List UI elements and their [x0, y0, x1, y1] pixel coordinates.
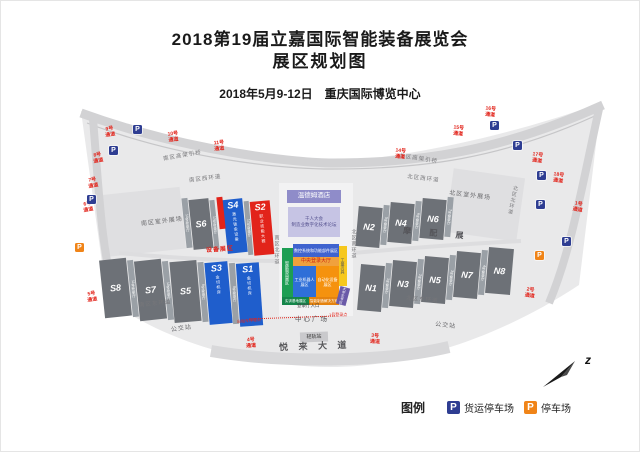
hall-label: S1 — [242, 265, 254, 275]
freight-parking-icon: P — [536, 200, 545, 209]
zone-tools: 工量刃具 — [339, 246, 347, 286]
map-label: 南区北环道 — [273, 235, 279, 265]
hall-label: S6 — [195, 219, 207, 229]
hall-label: S5 — [180, 287, 192, 297]
passage-label: 1号 通道 — [572, 201, 584, 214]
parking-icon: P — [75, 243, 84, 252]
parking-icon: P — [524, 401, 537, 414]
wyndham-hotel: 温德姆酒店 — [287, 190, 341, 203]
hall-label: N8 — [493, 266, 505, 276]
hall-label: S7 — [145, 285, 157, 295]
exhibition-map: z S6S4激光钣金设备S2职业技能大赛S8S7S5S3金切机床S1金切机床N2… — [1, 1, 639, 451]
passage-label: 16号 通道 — [484, 106, 496, 119]
map-label: 北区南环道 — [350, 229, 356, 259]
freight-parking-icon: P — [133, 125, 142, 134]
passage-label: 4号 通道 — [246, 338, 257, 350]
passage-label: 7号 通道 — [87, 177, 99, 190]
passage-label: 10号 通道 — [167, 131, 179, 144]
hall-label: N5 — [429, 275, 441, 285]
strip-label: 10号登录厅 — [165, 281, 170, 299]
hall-label: S8 — [110, 283, 122, 293]
hall-n1: N1 — [357, 264, 385, 312]
exhibition-map-page: 2018第19届立嘉国际智能装备展览会 展区规划图 2018年5月9-12日 重… — [0, 0, 640, 452]
compass: z — [541, 353, 591, 393]
passage-label: 3号 通道 — [370, 334, 381, 346]
hall-label: N1 — [365, 283, 377, 293]
parking-icon: P — [535, 251, 544, 260]
legend-item-label: 货运停车场 — [464, 400, 514, 415]
hall-label: N3 — [397, 279, 409, 289]
passage-label: 5号 通道 — [86, 291, 98, 304]
legend-item-label: 停车场 — [541, 400, 571, 415]
freight-parking-icon: P — [109, 146, 118, 155]
hall-s5: S5 — [169, 260, 201, 323]
legend: 图例 P 货运停车场 P 停车场 — [401, 399, 571, 416]
hall-n4: N4 — [387, 202, 414, 244]
zone-central-hall: 中央登录大厅 — [293, 257, 339, 266]
passage-label: 8号 通道 — [92, 152, 104, 165]
hall-label: S3 — [210, 264, 222, 274]
strip-label: 1号登录厅 — [385, 277, 390, 293]
strip-label: 14号登录厅 — [184, 214, 189, 232]
hall-label: S2 — [254, 203, 266, 213]
hall-sub-label: 职业技能大赛 — [258, 214, 265, 244]
hall-label: N7 — [461, 270, 473, 280]
strip-label: 11号登录厅 — [130, 280, 135, 298]
hall-label: N6 — [427, 214, 439, 224]
strip-label: 9号登录厅 — [201, 284, 206, 300]
hall-label: S4 — [227, 201, 239, 211]
hall-n8: N8 — [485, 247, 514, 295]
legend-item-freight-parking: P 货运停车场 — [447, 400, 514, 415]
hall-sub-label: 金切机床 — [215, 275, 222, 295]
freight-parking-icon: P — [490, 121, 499, 130]
zone-cnc-systems: 数控系统和功能部件展区 — [293, 244, 339, 257]
legend-item-parking: P 停车场 — [524, 400, 571, 415]
passage-label: 15号 通道 — [452, 125, 464, 138]
freight-parking-icon: P — [87, 195, 96, 204]
hall-n7: N7 — [453, 251, 481, 299]
freight-parking-icon: P — [537, 171, 546, 180]
passage-label: 18号 通道 — [552, 172, 564, 185]
forum-hall: 千人大会 制造业数字化技术论坛 — [288, 207, 340, 237]
strip-label: 12号登录厅 — [246, 219, 251, 237]
strip-label: 13号登录厅 — [212, 216, 217, 234]
passage-label: 11号 通道 — [214, 141, 225, 153]
passage-label: 9号 通道 — [104, 126, 116, 139]
freight-parking-icon: P — [447, 401, 460, 414]
map-label: 登录厅入口 — [297, 304, 320, 309]
strip-label: 5号登录厅 — [383, 217, 388, 233]
zone-robot: 工业机器人展区 — [293, 266, 316, 297]
strip-label: 2号登录厅 — [417, 273, 422, 289]
hall-n2: N2 — [355, 206, 382, 248]
compass-arrow-icon — [541, 353, 591, 393]
hall-sub-label: 激光钣金设备 — [231, 212, 239, 242]
hall-label: N2 — [363, 222, 375, 232]
legend-title: 图例 — [401, 399, 425, 416]
zone-automation: 自动化设备展区 — [316, 266, 339, 297]
strip-label: 4号登录厅 — [481, 264, 486, 280]
freight-parking-icon: P — [562, 237, 571, 246]
strip-label: 3号登录厅 — [449, 269, 454, 285]
strip-label: 8号登录厅 — [232, 285, 237, 301]
compass-letter: z — [585, 353, 591, 367]
passage-label: 17号 通道 — [531, 152, 543, 165]
zone-smart-mfg: 智能制造展区 — [282, 248, 293, 297]
passage-label: 14号 通道 — [394, 148, 406, 161]
strip-label: 7号登录厅 — [447, 209, 452, 225]
freight-parking-icon: P — [513, 141, 522, 150]
hall-sub-label: 金切机床 — [246, 276, 252, 296]
passage-label: 2号 通道 — [524, 287, 536, 300]
